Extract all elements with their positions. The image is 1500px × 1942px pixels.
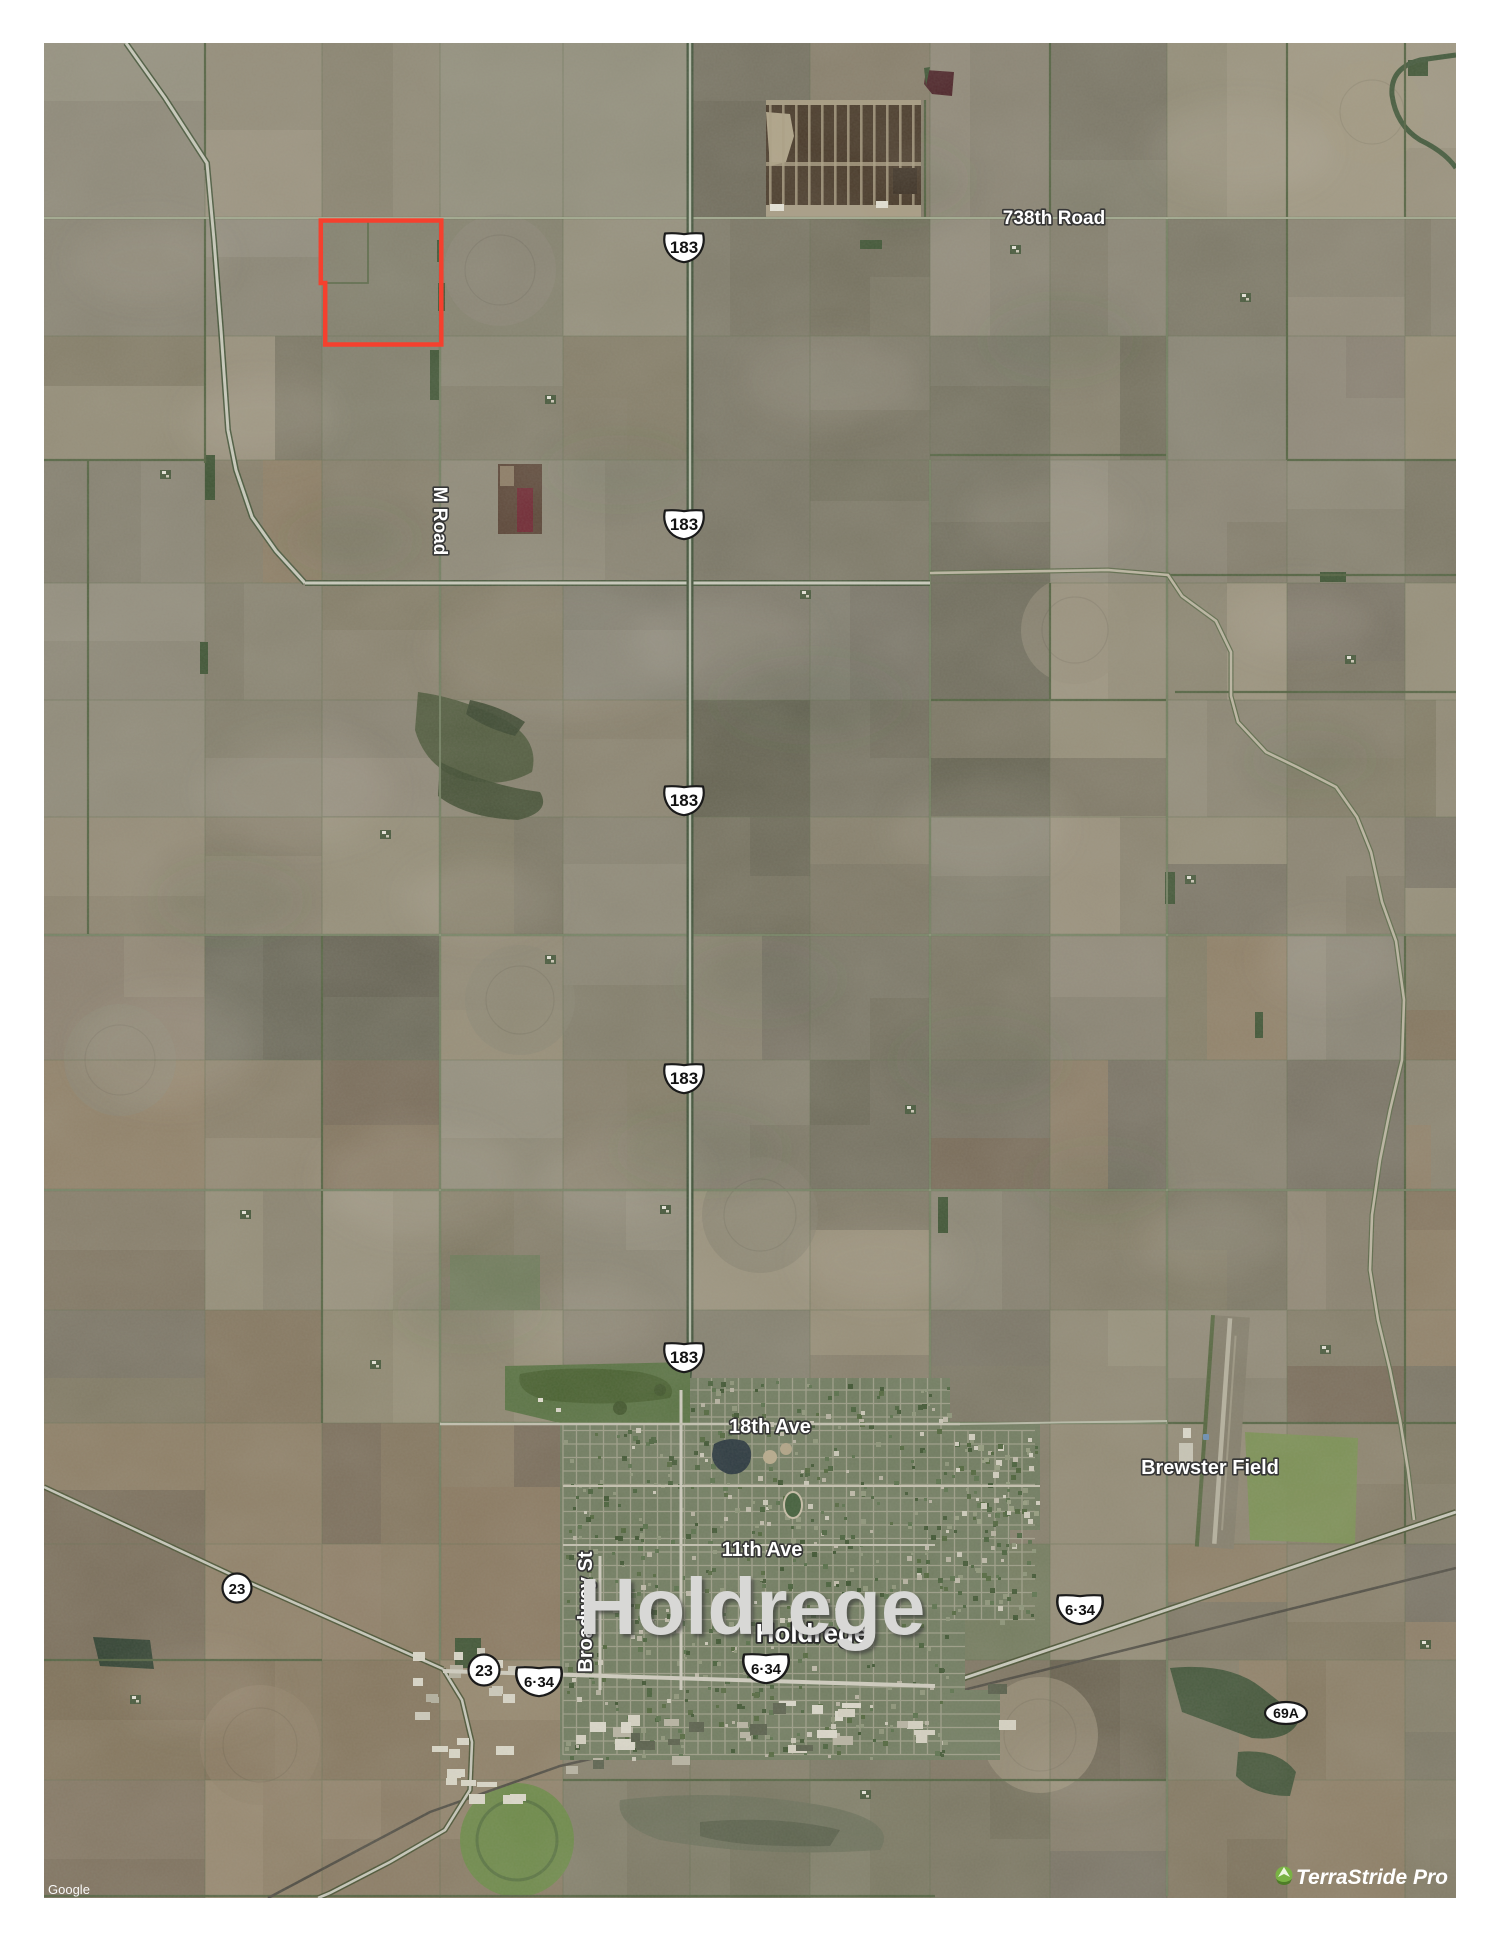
- svg-text:23: 23: [229, 1581, 246, 1598]
- svg-text:6·34: 6·34: [1065, 1602, 1096, 1619]
- svg-text:M Road: M Road: [429, 487, 450, 556]
- svg-text:183: 183: [670, 1348, 698, 1367]
- svg-text:Google: Google: [48, 1882, 90, 1897]
- svg-text:11th Ave: 11th Ave: [722, 1539, 803, 1561]
- svg-text:738th Road: 738th Road: [1003, 208, 1105, 229]
- svg-text:6·34: 6·34: [524, 1674, 555, 1691]
- svg-text:Holdrege: Holdrege: [579, 1562, 926, 1651]
- svg-text:23: 23: [475, 1663, 493, 1680]
- svg-text:18th Ave: 18th Ave: [729, 1416, 811, 1438]
- svg-text:6·34: 6·34: [751, 1661, 782, 1678]
- svg-text:183: 183: [670, 515, 698, 534]
- svg-text:183: 183: [670, 238, 698, 257]
- svg-text:69A: 69A: [1273, 1705, 1299, 1721]
- svg-text:Brewster Field: Brewster Field: [1141, 1457, 1279, 1479]
- svg-text:TerraStride Pro: TerraStride Pro: [1296, 1866, 1448, 1889]
- svg-text:183: 183: [670, 791, 698, 810]
- svg-text:183: 183: [670, 1069, 698, 1088]
